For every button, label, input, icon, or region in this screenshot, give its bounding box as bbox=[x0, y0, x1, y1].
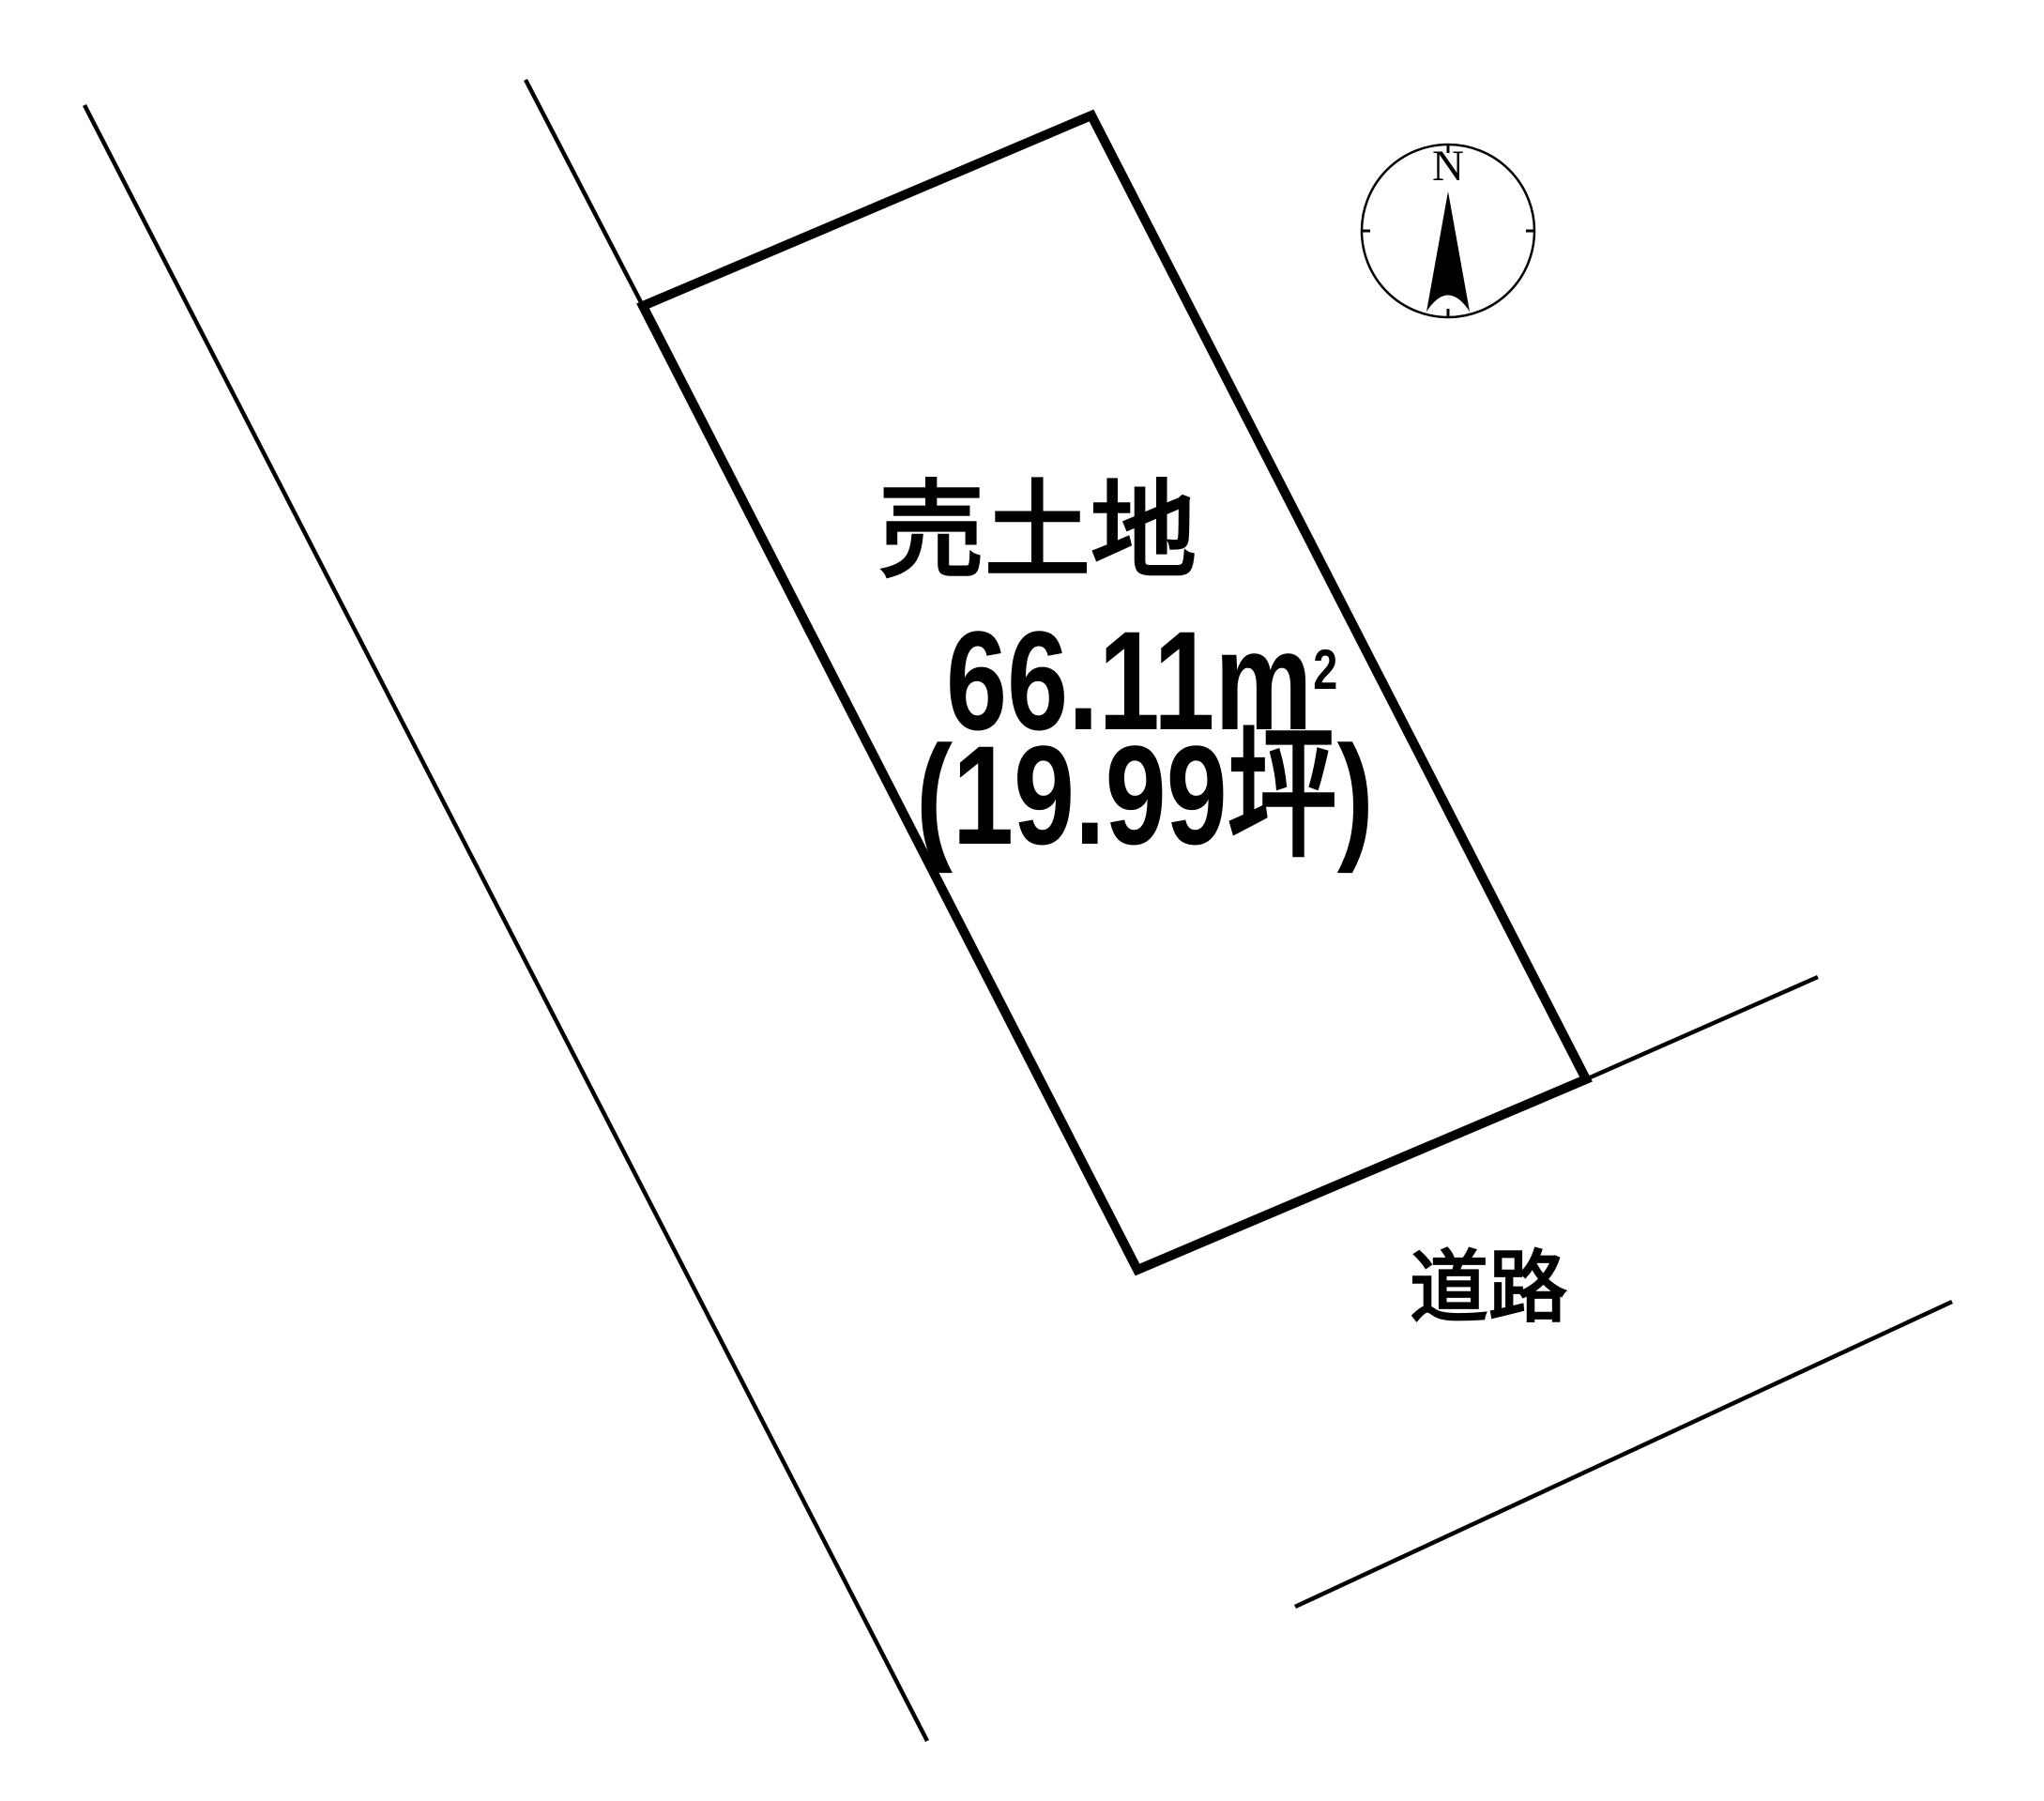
compass-north-label: N bbox=[1401, 145, 1495, 189]
west-road-inner-boundary-line bbox=[526, 80, 643, 306]
south-road-upper-boundary-line bbox=[1586, 977, 1818, 1079]
land-plot-diagram: 売土地 66.11m2 (19.99坪) 道路 N bbox=[0, 0, 2044, 1801]
parcel-title-label: 売土地 bbox=[878, 479, 1197, 585]
diagram-linework bbox=[0, 0, 2044, 1801]
south-road-lower-boundary-line bbox=[1295, 1302, 1952, 1607]
road-label: 道路 bbox=[1410, 1248, 1567, 1327]
compass-needle-icon bbox=[1426, 191, 1470, 312]
area-superscript: 2 bbox=[1313, 638, 1337, 701]
parcel-area-tsubo-label: (19.99坪) bbox=[916, 725, 1374, 865]
